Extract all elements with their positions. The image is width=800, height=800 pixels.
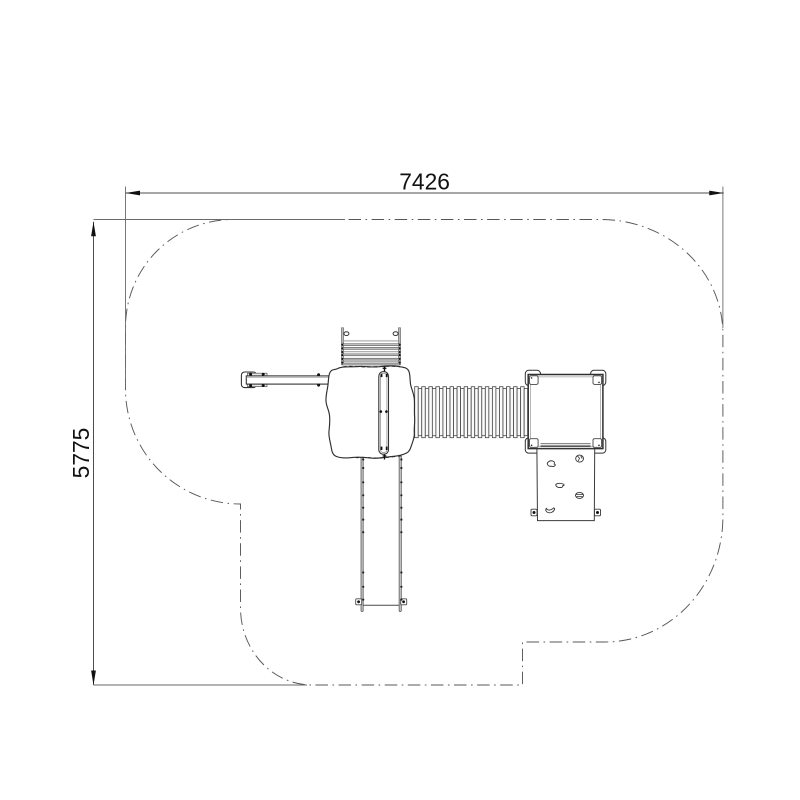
svg-text:7426: 7426 [399,169,450,195]
svg-text:5775: 5775 [68,428,94,479]
